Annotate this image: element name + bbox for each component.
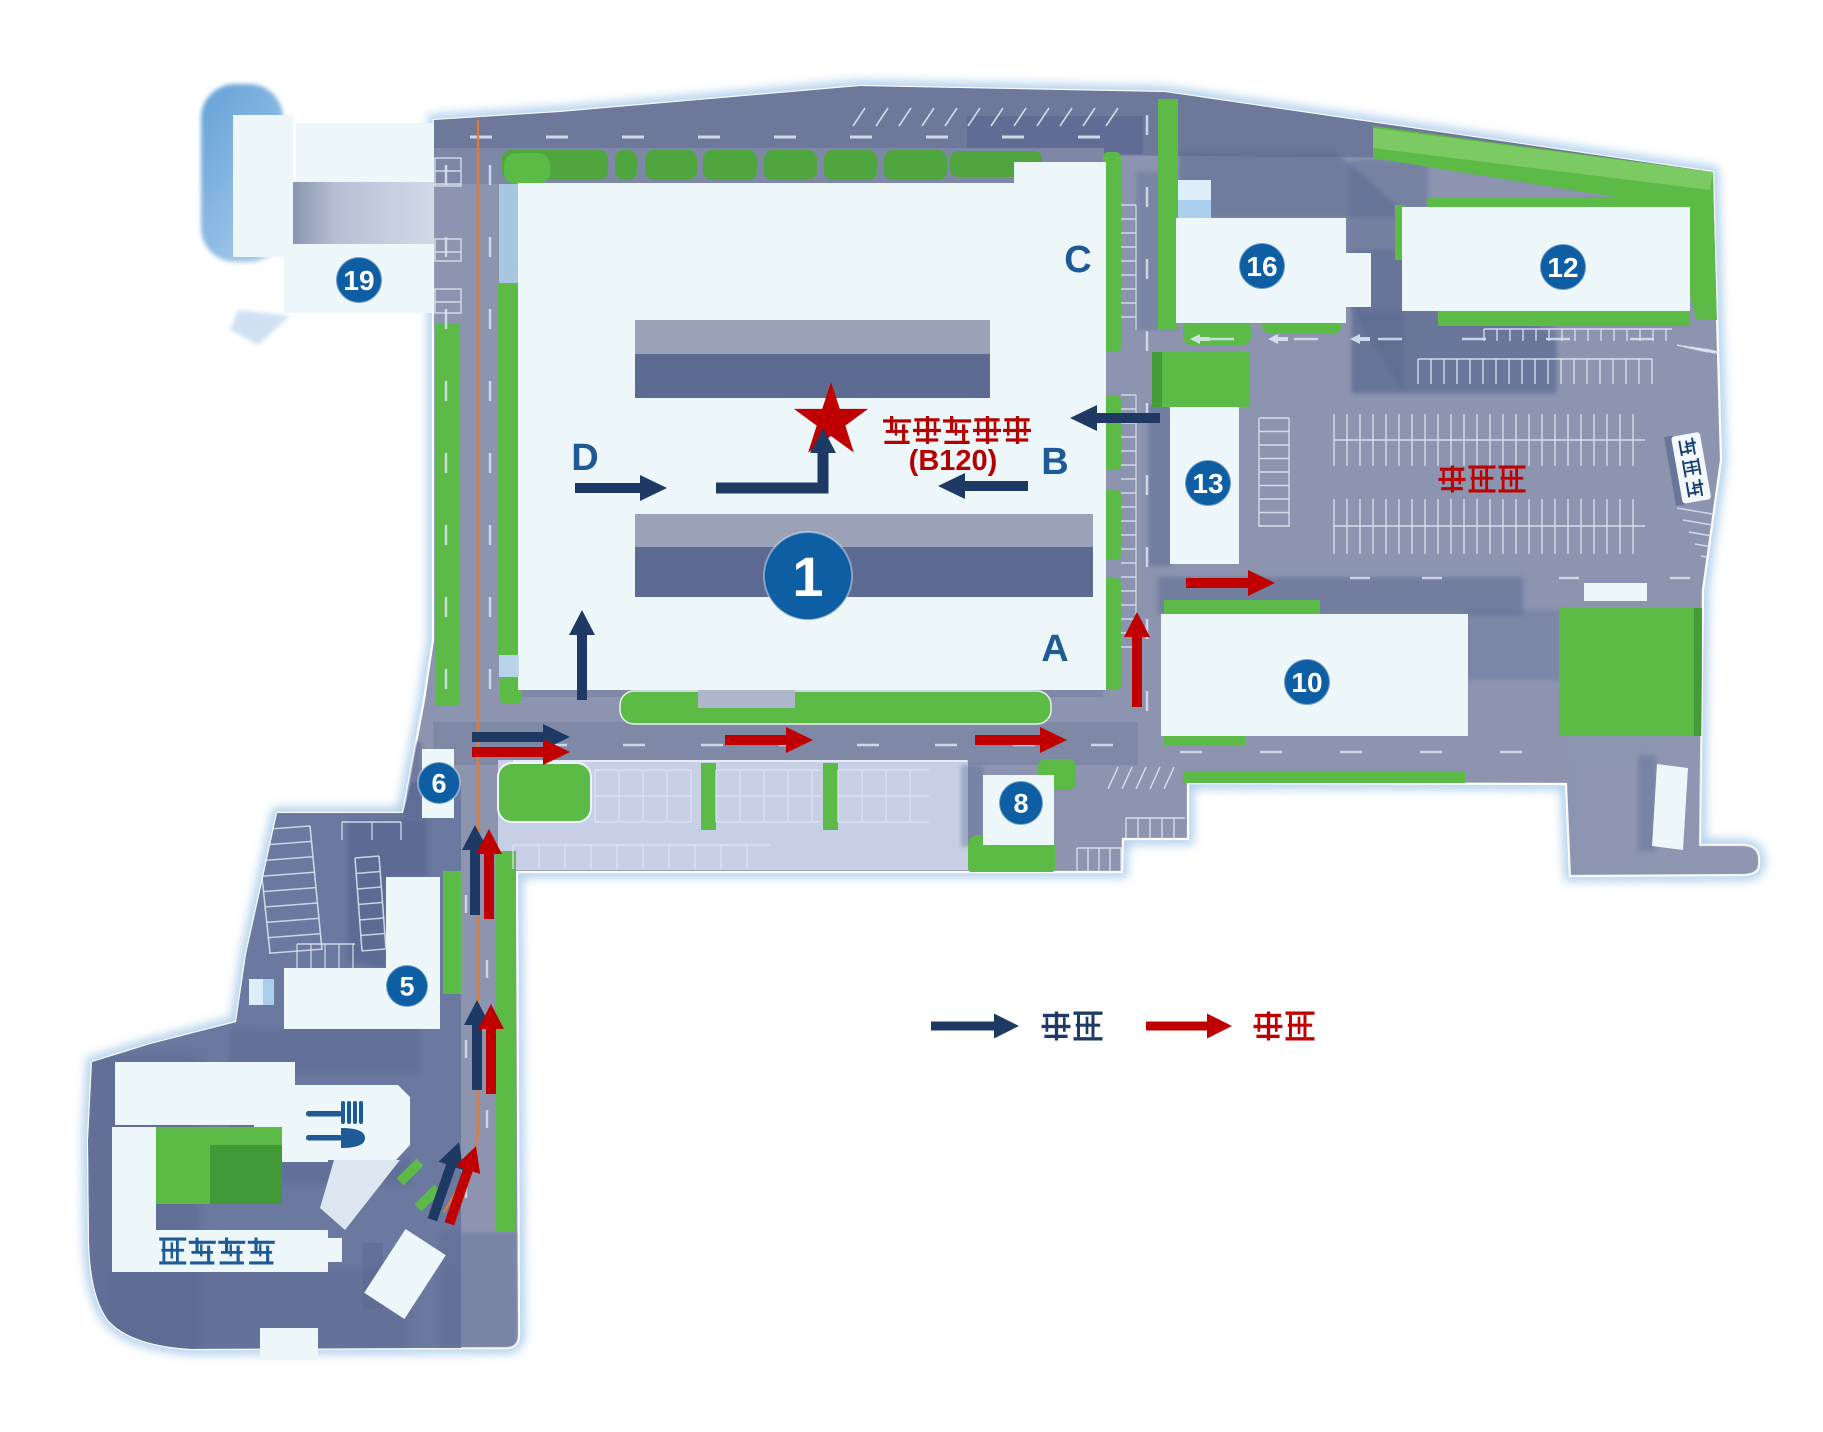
svg-text:16: 16	[1246, 251, 1277, 282]
svg-text:B: B	[1041, 441, 1068, 483]
svg-text:8: 8	[1013, 789, 1028, 819]
svg-text:(B120): (B120)	[909, 445, 998, 477]
svg-text:10: 10	[1291, 667, 1322, 698]
svg-text:5: 5	[399, 972, 414, 1002]
svg-text:13: 13	[1192, 468, 1223, 499]
svg-text:12: 12	[1547, 252, 1578, 283]
svg-text:D: D	[571, 437, 598, 479]
svg-text:C: C	[1064, 239, 1091, 281]
svg-text:A: A	[1041, 628, 1068, 670]
svg-text:6: 6	[431, 769, 446, 799]
svg-text:19: 19	[343, 265, 374, 296]
svg-text:1: 1	[792, 545, 823, 608]
